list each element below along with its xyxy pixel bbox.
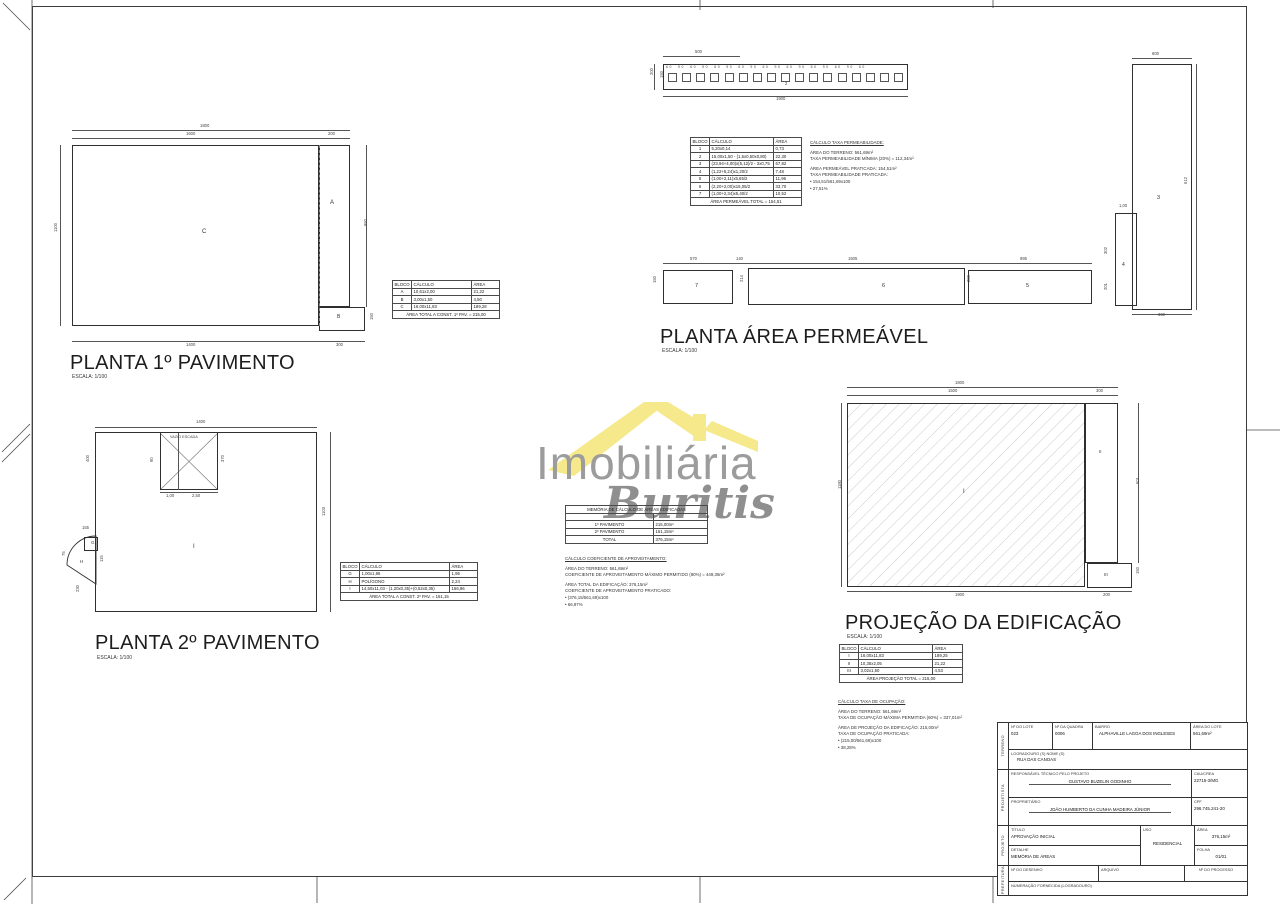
table-cell: 7,48 bbox=[774, 168, 802, 176]
table-cell: ÁREA TOTAL A CONST. 1º PAV. = 215,00 bbox=[393, 311, 500, 319]
table-cell: (1,00+2,11)x5,65/2 bbox=[710, 175, 774, 183]
proj-title: PROJEÇÃO DA EDIFICAÇÃO bbox=[845, 612, 1122, 635]
dim-label: 1103 bbox=[322, 507, 326, 516]
paver-square bbox=[809, 73, 818, 82]
table-cell: ÁREA PROJEÇÃO TOTAL = 215,00 bbox=[840, 675, 963, 683]
proj-area-table: BLOCOCÁLCULOÁREAI16,00x11,83189,25II10,3… bbox=[839, 644, 963, 683]
paver-square bbox=[894, 73, 903, 82]
table-cell: BLOCO bbox=[393, 281, 412, 289]
dim-label: 4 bbox=[1122, 263, 1125, 268]
table-cell: 67,82 bbox=[774, 160, 802, 168]
table-cell: 16,00x11,83 bbox=[859, 652, 933, 660]
table-cell: B bbox=[393, 296, 412, 304]
dim-label: 214 bbox=[740, 275, 744, 282]
table-cell: 189,28 bbox=[472, 303, 500, 311]
dim-label: 370 bbox=[221, 455, 225, 462]
dim-label: 1,00 bbox=[166, 494, 174, 498]
perm-scale-label: ESCALA: 1/100 bbox=[662, 348, 697, 354]
dim-line bbox=[847, 387, 1118, 388]
table-cell: 3,00x1,50 bbox=[412, 296, 472, 304]
area-proj-value: 376,15m² bbox=[1197, 834, 1245, 839]
table-cell: 0,73 bbox=[774, 145, 802, 153]
table-cell: 3,02x1,50 bbox=[859, 667, 933, 675]
table-cell: (1,00+2,34)x5,40/2 bbox=[710, 190, 774, 198]
table-cell: 156,96 bbox=[450, 585, 478, 593]
note-line: • 27,51% bbox=[810, 186, 985, 193]
note-line: TAXA PERMEABILIDADE PRATICADA: bbox=[810, 172, 985, 179]
dim-line bbox=[663, 96, 908, 97]
table-cell: 1º PAVIMENTO bbox=[566, 521, 654, 529]
table-cell: II bbox=[840, 660, 859, 668]
perm-block3-outline bbox=[1132, 64, 1192, 310]
perm-strip-tick-labels: 60 90 60 90 60 90 60 90 60 90 60 90 60 9… bbox=[666, 66, 866, 69]
dim-label: 200 bbox=[328, 132, 335, 136]
dim-label: 600 bbox=[1152, 52, 1159, 56]
proprietario-value: JOÃO HUMBERTO DA CUNHA MADEIRA JÚNIOR bbox=[1029, 807, 1171, 813]
table-cell: 10,35x2,05 bbox=[859, 660, 933, 668]
dim-label: 75 bbox=[62, 551, 66, 556]
perm-calc-notes: CÁLCULO TAXA PERMEABILIDADE:ÁREA DO TERR… bbox=[810, 140, 985, 192]
quadra-value: 0006 bbox=[1055, 731, 1090, 736]
table-cell: 2º PAVIMENTO bbox=[566, 528, 654, 536]
table-cell: 7 bbox=[691, 190, 710, 198]
dim-label: 1180 bbox=[838, 480, 842, 489]
dim-line bbox=[841, 403, 842, 587]
plan1-title: PLANTA 1º PAVIMENTO bbox=[70, 352, 295, 375]
perm-block5-outline bbox=[968, 270, 1092, 304]
table-cell: 11,96 bbox=[774, 175, 802, 183]
table-cell: 5,20x0,14 bbox=[710, 145, 774, 153]
table-cell: ÁREA TOTAL A CONST. 2º PAV. = 161,15 bbox=[341, 593, 478, 601]
dim-label: 1100 bbox=[54, 223, 58, 232]
folha-value: 01/01 bbox=[1197, 854, 1245, 859]
note-line: COEFICIENTE DE APROVEITAMENTO PRATICADO: bbox=[565, 588, 800, 595]
paver-square bbox=[668, 73, 677, 82]
paver-square bbox=[880, 73, 889, 82]
titleblock-projetista-section: PROJETISTA RESPONSÁVEL TÉCNICO PELO PROJ… bbox=[998, 770, 1247, 826]
dim-label: 612 bbox=[1184, 177, 1188, 184]
perm-block4-outline bbox=[1115, 213, 1137, 306]
paver-square bbox=[838, 73, 847, 82]
dim-label: 6 bbox=[882, 284, 885, 290]
note-line: ÁREA DO TERRENO: 561,69m² bbox=[565, 566, 800, 573]
cau-value: 22715-3/MG bbox=[1194, 778, 1245, 783]
dim-line bbox=[366, 145, 367, 307]
dim-label: 601 bbox=[1136, 477, 1140, 484]
dim-label: G bbox=[91, 541, 95, 546]
area-lote-value: 561,69m² bbox=[1193, 731, 1245, 736]
plan2-stair-void bbox=[160, 433, 218, 490]
perm-block6-outline bbox=[748, 268, 965, 305]
table-cell: BLOCO bbox=[840, 645, 859, 653]
uso-value: RESIDENCIAL bbox=[1143, 841, 1192, 846]
note-line: ÁREA DO TERRENO: 561,69m² bbox=[838, 709, 1048, 716]
table-cell: CÁLCULO bbox=[710, 138, 774, 146]
table-cell: 189,25 bbox=[933, 652, 963, 660]
proj-block2-outline bbox=[1085, 403, 1118, 563]
table-cell: ÁREA PERMEÁVEL TOTAL = 154,51 bbox=[691, 198, 802, 206]
dim-label: III bbox=[1104, 573, 1108, 578]
area-proj-label: ÁREA bbox=[1197, 827, 1245, 832]
responsavel-label: RESPONSÁVEL TÉCNICO PELO PROJETO bbox=[1011, 771, 1189, 776]
table-cell: III bbox=[840, 667, 859, 675]
table-cell: POLÍGONO bbox=[360, 578, 450, 586]
table-cell: (2,20+2,00)x15,05/2 bbox=[710, 183, 774, 191]
note-line: CÁLCULO TAXA PERMEABILIDADE: bbox=[810, 140, 985, 147]
dim-label: 400 bbox=[86, 455, 90, 462]
table-cell: A bbox=[393, 288, 412, 296]
coeficiente-notes: CÁLCULO COEFICIENTE DE APROVEITAMENTO:ÁR… bbox=[565, 556, 800, 608]
dim-label: 500 bbox=[695, 50, 702, 54]
dim-label: 2,50 bbox=[192, 494, 200, 498]
dim-label: 1600 bbox=[186, 132, 195, 136]
paver-square bbox=[725, 73, 734, 82]
table-cell: 10,52 bbox=[774, 190, 802, 198]
dim-label: 1400 bbox=[196, 420, 205, 424]
dim-label: 360 bbox=[1158, 313, 1165, 317]
dim-line bbox=[663, 56, 740, 57]
dim-line bbox=[72, 341, 365, 342]
logradouro-value: RUA DAS CANOAS bbox=[1011, 757, 1245, 762]
paver-square bbox=[767, 73, 776, 82]
dim-label: 3 bbox=[1157, 196, 1160, 202]
table-cell: BLOCO bbox=[691, 138, 710, 146]
dim-line bbox=[95, 427, 317, 428]
table-cell: 161,15m² bbox=[654, 528, 708, 536]
plan1-area-table: BLOCOCÁLCULOÁREAA10,61x2,0021,22B3,00x1,… bbox=[392, 280, 500, 319]
dim-line bbox=[1196, 64, 1197, 310]
table-cell bbox=[566, 513, 654, 521]
proj-block3-outline bbox=[1087, 563, 1132, 588]
titleblock: TERRENO Nº DO LOTE023 Nº DA QUADRA0006 B… bbox=[997, 722, 1248, 896]
paver-square bbox=[795, 73, 804, 82]
detalhe-label: DETALHE bbox=[1011, 847, 1138, 852]
plan2-title: PLANTA 2º PAVIMENTO bbox=[95, 632, 320, 655]
detalhe-value: MEMÓRIA DE ÁREAS bbox=[1011, 854, 1138, 859]
plan1-scale-label: ESCALA: 1/100 bbox=[72, 374, 107, 380]
table-cell: C bbox=[393, 303, 412, 311]
dim-line bbox=[663, 263, 1092, 264]
dim-label: 150 bbox=[660, 71, 664, 78]
numeracao-label: NUMERAÇÃO FORNECIDA (LOGRADOURO) bbox=[1011, 883, 1245, 888]
note-line: TAXA PERMEABILIDADE MÍNIMA (20%) = 112,3… bbox=[810, 156, 985, 163]
dim-label: I bbox=[193, 544, 195, 550]
table-cell: 2,24 bbox=[450, 578, 478, 586]
folha-label: FOLHA bbox=[1197, 847, 1245, 852]
logradouro-label: LOGRADOURO (S) NOME (S) bbox=[1011, 751, 1245, 756]
table-cell: 21,22 bbox=[933, 660, 963, 668]
hatch-pattern bbox=[848, 404, 1084, 586]
lote-label: Nº DO LOTE bbox=[1011, 724, 1050, 729]
dim-label: 570 bbox=[690, 257, 697, 261]
dim-label: 2 bbox=[785, 82, 787, 86]
titulo-value: APROVAÇÃO INICIAL bbox=[1011, 834, 1138, 839]
paver-square bbox=[739, 73, 748, 82]
proj-hatched-outline bbox=[847, 403, 1085, 587]
dim-label: H bbox=[80, 560, 83, 565]
table-cell: 16,00x11,83 bbox=[412, 303, 472, 311]
note-line: COEFICIENTE DE APROVEITAMENTO MÁXIMO PER… bbox=[565, 572, 800, 579]
table-cell bbox=[654, 513, 708, 521]
perm-area-table: BLOCOCÁLCULOÁREA15,20x0,140,73215,00x1,5… bbox=[690, 137, 802, 206]
table-cell: 10,61x2,00 bbox=[412, 288, 472, 296]
table-cell: 6 bbox=[691, 183, 710, 191]
table-cell: CÁLCULO bbox=[412, 281, 472, 289]
note-line: CÁLCULO TAXA DE OCUPAÇÃO: bbox=[838, 699, 1048, 706]
dim-label: 200 bbox=[1103, 593, 1110, 597]
projetista-vertical-label: PROJETISTA bbox=[998, 770, 1009, 825]
titleblock-projeto-section: PROJETO TÍTULOAPROVAÇÃO INICIAL DETALHEM… bbox=[998, 826, 1247, 866]
paver-square bbox=[696, 73, 705, 82]
dim-label: 302 bbox=[1104, 247, 1108, 254]
table-cell: ÁREA bbox=[450, 563, 478, 571]
titleblock-terreno-section: TERRENO Nº DO LOTE023 Nº DA QUADRA0006 B… bbox=[998, 723, 1247, 770]
table-cell: 5 bbox=[691, 175, 710, 183]
paver-square bbox=[753, 73, 762, 82]
dim-line bbox=[72, 138, 350, 139]
drawing-sheet: Imobiliária Buritis 18001600200110095014… bbox=[0, 0, 1280, 904]
area-lote-label: ÁREA DO LOTE bbox=[1193, 724, 1245, 729]
dim-label: 140 bbox=[736, 257, 743, 261]
dim-label: 5 bbox=[1026, 284, 1029, 290]
bairro-value: ALPHAVILLE LAGOA DOS INGLESES bbox=[1095, 731, 1188, 736]
dim-label: 995 bbox=[1020, 257, 1027, 261]
dim-label: 90 bbox=[150, 457, 154, 462]
table-cell: ÁREA bbox=[774, 138, 802, 146]
dim-line bbox=[60, 145, 61, 326]
plan2-scale-label: ESCALA: 1/100 bbox=[97, 655, 132, 661]
dim-label: 300 bbox=[1096, 389, 1103, 393]
dim-label: 1900 bbox=[955, 593, 964, 597]
arquivo-label: ARQUIVO bbox=[1101, 867, 1182, 872]
dim-line bbox=[847, 395, 1118, 396]
dim-label: A bbox=[330, 200, 334, 206]
table-cell: I bbox=[840, 652, 859, 660]
dim-label: 115 bbox=[100, 555, 104, 562]
cpf-value: 296.745.241-20 bbox=[1194, 806, 1245, 811]
plan1-block-b-outline bbox=[319, 307, 365, 331]
cau-label: CAU/CREA bbox=[1194, 771, 1245, 776]
table-cell: 2 bbox=[691, 153, 710, 161]
table-cell: 33,70 bbox=[774, 183, 802, 191]
responsavel-value: GUSTAVO BUZELIN GODINHO bbox=[1029, 779, 1171, 785]
dim-label: 950 bbox=[364, 219, 368, 226]
dim-label: 1505 bbox=[848, 257, 857, 261]
dim-label: 300 bbox=[336, 343, 343, 347]
plan1-dashed-divider bbox=[319, 145, 320, 326]
note-line: CÁLCULO COEFICIENTE DE APROVEITAMENTO: bbox=[565, 556, 800, 563]
note-line: ÁREA DO TERRENO: 561,69m² bbox=[810, 150, 985, 157]
dim-label: 1800 bbox=[200, 124, 209, 128]
dim-label: 150 bbox=[653, 276, 657, 283]
dim-line bbox=[330, 432, 331, 612]
dim-label: 1500 bbox=[948, 389, 957, 393]
cpf-label: CPF bbox=[1194, 799, 1245, 804]
dim-line bbox=[72, 130, 350, 131]
note-line: • 66,97% bbox=[565, 602, 800, 609]
dim-line bbox=[1132, 58, 1192, 59]
table-cell: G bbox=[341, 570, 360, 578]
dim-label: B bbox=[337, 315, 340, 320]
dim-label: 155 bbox=[82, 526, 89, 530]
note-line: ÁREA TOTAL DA EDIFICAÇÃO: 376,15m² bbox=[565, 582, 800, 589]
uso-label: USO bbox=[1143, 827, 1192, 832]
table-cell: H bbox=[341, 578, 360, 586]
dim-label: 201 bbox=[1104, 283, 1108, 290]
table-cell: 3 bbox=[691, 160, 710, 168]
proprietario-label: PROPRIETÁRIO bbox=[1011, 799, 1189, 804]
table-cell: (23,94+4,00)x(5,12)/2 - 3x0,75 bbox=[710, 160, 774, 168]
titleblock-prefeitura-section: PREFEITURA Nº DO DESENHO ARQUIVO Nº DO P… bbox=[998, 866, 1247, 895]
table-cell: 376,15m² bbox=[654, 536, 708, 544]
desenho-label: Nº DO DESENHO bbox=[1011, 867, 1096, 872]
paver-square bbox=[823, 73, 832, 82]
perm-title: PLANTA ÁREA PERMEÁVEL bbox=[660, 326, 928, 349]
plan1-block-c-outline bbox=[72, 145, 319, 326]
lote-value: 023 bbox=[1011, 731, 1050, 736]
dim-label: 150 bbox=[370, 313, 374, 320]
proj-scale-label: ESCALA: 1/100 bbox=[847, 634, 882, 640]
titulo-label: TÍTULO bbox=[1011, 827, 1138, 832]
dim-label: 1400 bbox=[186, 343, 195, 347]
prefeitura-vertical-label: PREFEITURA bbox=[998, 866, 1009, 895]
note-line: ÁREA PERMEÁVEL PRATICADA: 154,51m² bbox=[810, 166, 985, 173]
table-cell: 22,30 bbox=[774, 153, 802, 161]
table-cell: ÁREA bbox=[933, 645, 963, 653]
dim-label: I bbox=[963, 489, 965, 495]
dim-label: 1800 bbox=[955, 381, 964, 385]
dim-label: C bbox=[202, 229, 206, 235]
dim-label: 200 bbox=[650, 68, 654, 75]
dim-label: 230 bbox=[76, 585, 80, 592]
dim-label: 7 bbox=[695, 284, 698, 290]
table-cell: I bbox=[341, 585, 360, 593]
bairro-label: BAIRRO bbox=[1095, 724, 1188, 729]
table-cell: 1,95 bbox=[450, 570, 478, 578]
table-cell: ÁREA bbox=[472, 281, 500, 289]
table-cell: MEMÓRIA DE CÁLCULO DE ÁREAS EDIFICADAS bbox=[566, 506, 708, 514]
table-cell: BLOCO bbox=[341, 563, 360, 571]
paver-square bbox=[866, 73, 875, 82]
paver-square bbox=[682, 73, 691, 82]
dim-label: 1900 bbox=[776, 97, 785, 101]
memoria-table: MEMÓRIA DE CÁLCULO DE ÁREAS EDIFICADAS1º… bbox=[565, 505, 708, 544]
table-cell: 15,00x1,50 - (1,5x0,50x0,80) bbox=[710, 153, 774, 161]
projeto-vertical-label: PROJETO bbox=[998, 826, 1009, 865]
table-cell: (1,22+5,24)x1,20/2 bbox=[710, 168, 774, 176]
note-line: • 154,51/561,69x100 bbox=[810, 179, 985, 186]
dim-label: II bbox=[1099, 450, 1102, 455]
stair-void-label: VAZIO ESCADA bbox=[170, 436, 198, 440]
quadra-label: Nº DA QUADRA bbox=[1055, 724, 1090, 729]
note-line: TAXA DE OCUPAÇÃO MÁXIMA PERMITIDA (60%) … bbox=[838, 715, 1048, 722]
paver-square bbox=[852, 73, 861, 82]
terreno-vertical-label: TERRENO bbox=[998, 723, 1009, 769]
dim-line bbox=[847, 591, 1132, 592]
table-cell: 4,53 bbox=[933, 667, 963, 675]
table-cell: 21,22 bbox=[472, 288, 500, 296]
dim-label: 1,00 bbox=[1119, 204, 1127, 208]
dim-line bbox=[178, 433, 179, 490]
table-cell: 1 bbox=[691, 145, 710, 153]
plan2-area-table: BLOCOCÁLCULOÁREAG1,00x1,951,95HPOLÍGONO2… bbox=[340, 562, 478, 601]
table-cell: 1,00x1,95 bbox=[360, 570, 450, 578]
table-cell: CÁLCULO bbox=[360, 563, 450, 571]
dim-label: 200 bbox=[967, 275, 971, 282]
processo-label: Nº DO PROCESSO bbox=[1187, 867, 1245, 872]
table-cell: 4,50 bbox=[472, 296, 500, 304]
table-cell: TOTAL bbox=[566, 536, 654, 544]
paver-square bbox=[710, 73, 719, 82]
table-cell: 14,50x11,03 - (1,20x0,35)+(0,52x0,35) bbox=[360, 585, 450, 593]
table-cell: CÁLCULO bbox=[859, 645, 933, 653]
dim-label: 150 bbox=[1136, 567, 1140, 574]
plan1-block-a-outline bbox=[319, 145, 350, 307]
table-cell: 215,00m² bbox=[654, 521, 708, 529]
note-line: • (376,15/561,69)x100 bbox=[565, 595, 800, 602]
table-cell: 4 bbox=[691, 168, 710, 176]
